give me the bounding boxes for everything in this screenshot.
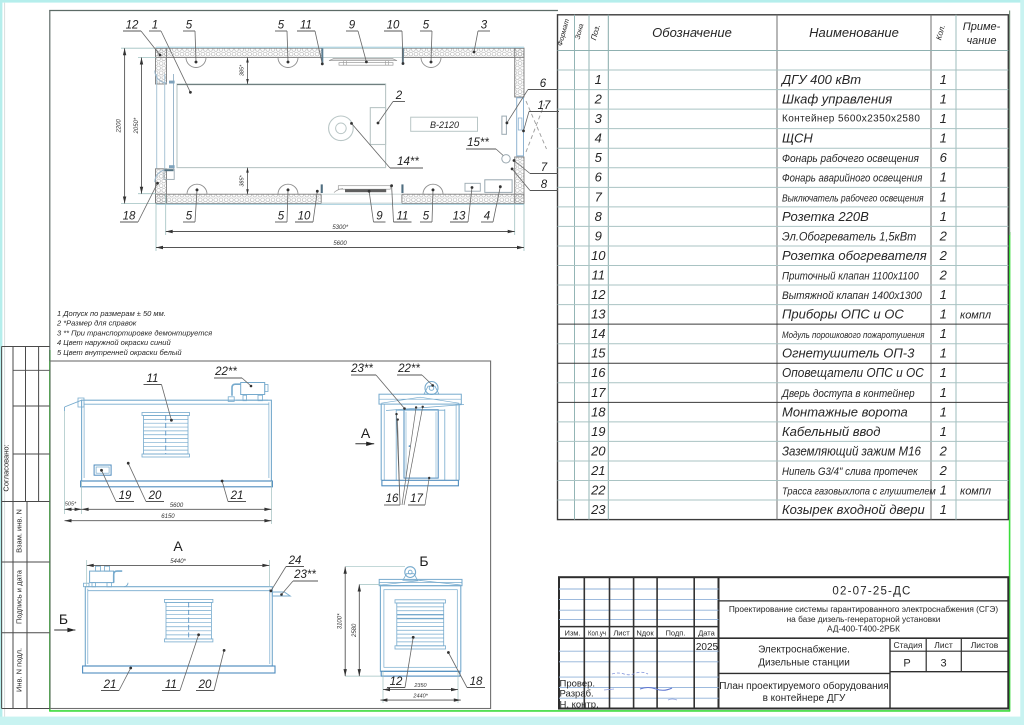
- svg-text:15**: 15**: [467, 137, 489, 149]
- svg-text:2350: 2350: [413, 683, 427, 689]
- svg-text:22**: 22**: [397, 363, 420, 375]
- svg-text:Согласовано:: Согласовано:: [2, 444, 11, 491]
- svg-text:9: 9: [376, 211, 383, 223]
- svg-text:19: 19: [591, 424, 605, 439]
- svg-text:02-07-25-ДС: 02-07-25-ДС: [832, 586, 911, 598]
- svg-text:1: 1: [940, 424, 947, 439]
- svg-text:1: 1: [152, 20, 158, 32]
- svg-text:Стадия: Стадия: [894, 640, 923, 650]
- svg-text:4: 4: [595, 131, 602, 146]
- svg-text:1: 1: [940, 404, 947, 419]
- svg-text:7: 7: [541, 162, 548, 174]
- svg-text:6150: 6150: [161, 514, 175, 520]
- svg-text:А: А: [361, 425, 371, 441]
- svg-text:5600: 5600: [170, 503, 184, 509]
- svg-text:Дверь доступа в контейнер: Дверь доступа в контейнер: [781, 388, 915, 400]
- svg-text:13: 13: [453, 211, 466, 223]
- svg-text:2025: 2025: [696, 642, 719, 653]
- svg-text:1: 1: [940, 72, 947, 87]
- svg-text:2: 2: [939, 443, 948, 458]
- svg-text:2: 2: [939, 228, 948, 243]
- svg-text:21: 21: [230, 490, 244, 502]
- svg-text:Кабельный ввод: Кабельный ввод: [782, 424, 880, 439]
- svg-text:8: 8: [541, 179, 548, 191]
- svg-text:14: 14: [591, 326, 605, 341]
- svg-text:Розетка 220В: Розетка 220В: [782, 209, 869, 224]
- svg-text:План проектируемого оборудован: План проектируемого оборудования: [719, 680, 888, 692]
- svg-text:Подп.: Подп.: [666, 628, 686, 637]
- svg-text:18: 18: [470, 676, 483, 688]
- svg-text:2: 2: [594, 92, 603, 107]
- svg-text:6: 6: [940, 150, 948, 165]
- svg-text:385*: 385*: [240, 174, 246, 186]
- svg-text:ДГУ 400 кВт: ДГУ 400 кВт: [780, 72, 861, 87]
- svg-text:5300*: 5300*: [332, 225, 348, 231]
- svg-text:2440*: 2440*: [412, 694, 428, 700]
- svg-text:2200: 2200: [117, 119, 123, 134]
- svg-text:16: 16: [591, 365, 606, 380]
- svg-text:Модуль порошкового пожаротушен: Модуль порошкового пожаротушения: [782, 330, 925, 341]
- svg-text:2: 2: [939, 463, 948, 478]
- svg-text:4 Цвет наружной окраски синий: 4 Цвет наружной окраски синий: [57, 338, 171, 347]
- svg-text:Лист: Лист: [613, 628, 630, 637]
- svg-text:Дата: Дата: [698, 628, 715, 637]
- svg-text:6: 6: [540, 78, 547, 90]
- svg-text:Оповещатели ОПС и ОС: Оповещатели ОПС и ОС: [782, 366, 924, 380]
- svg-text:Трасса газовыхлопа с глушителе: Трасса газовыхлопа с глушителем: [782, 486, 936, 498]
- svg-text:1: 1: [940, 209, 947, 224]
- svg-text:3100*: 3100*: [338, 613, 344, 629]
- svg-text:Электроснабжение.: Электроснабжение.: [758, 644, 850, 656]
- svg-text:3 ** При транспортировке демон: 3 ** При транспортировке демонтируется: [57, 328, 212, 337]
- svg-text:1: 1: [940, 346, 947, 361]
- svg-text:Шкаф управления: Шкаф управления: [782, 92, 892, 107]
- svg-text:2050*: 2050*: [134, 117, 140, 134]
- svg-text:А: А: [173, 538, 183, 554]
- svg-text:11: 11: [300, 20, 312, 32]
- svg-text:Выключатель рабочего освещения: Выключатель рабочего освещения: [782, 193, 924, 204]
- svg-text:компл: компл: [960, 485, 991, 497]
- svg-text:2: 2: [395, 90, 403, 102]
- svg-text:3: 3: [481, 20, 488, 32]
- svg-text:3: 3: [940, 658, 946, 670]
- svg-text:17: 17: [410, 493, 423, 505]
- svg-text:5: 5: [186, 211, 193, 223]
- svg-text:17: 17: [591, 385, 606, 400]
- svg-text:чание: чание: [966, 35, 996, 47]
- svg-text:11: 11: [592, 267, 606, 282]
- svg-text:5: 5: [278, 20, 285, 32]
- svg-text:8: 8: [595, 209, 603, 224]
- svg-text:Приточный клапан 1100х1100: Приточный клапан 1100х1100: [782, 271, 919, 283]
- svg-text:5: 5: [595, 150, 603, 165]
- svg-text:Вытяжной клапан 1400х1300: Вытяжной клапан 1400х1300: [782, 290, 922, 302]
- svg-text:1: 1: [940, 502, 947, 517]
- svg-text:10: 10: [591, 248, 606, 263]
- svg-text:11: 11: [165, 679, 177, 691]
- svg-text:22: 22: [590, 482, 606, 497]
- svg-text:11: 11: [147, 373, 159, 385]
- svg-text:20: 20: [198, 679, 212, 691]
- svg-text:Подпись и дата: Подпись и дата: [15, 569, 24, 624]
- svg-text:1: 1: [940, 111, 947, 126]
- svg-text:5: 5: [186, 20, 193, 32]
- svg-text:22**: 22**: [214, 366, 237, 378]
- svg-text:Монтажные ворота: Монтажные ворота: [782, 404, 908, 419]
- svg-text:1: 1: [940, 170, 947, 185]
- svg-text:1: 1: [940, 92, 947, 107]
- svg-text:Обозначение: Обозначение: [652, 25, 732, 40]
- svg-text:Контейнер 5600х2350х2580: Контейнер 5600х2350х2580: [782, 114, 920, 125]
- svg-text:12: 12: [126, 20, 139, 32]
- svg-text:Листов: Листов: [971, 640, 999, 650]
- svg-text:Б: Б: [419, 553, 428, 569]
- svg-text:18: 18: [123, 211, 136, 223]
- svg-text:Фонарь аварийного освещения: Фонарь аварийного освещения: [782, 173, 923, 185]
- svg-text:Изм.: Изм.: [564, 628, 580, 637]
- svg-text:Наименование: Наименование: [809, 25, 899, 40]
- svg-text:16: 16: [386, 493, 399, 505]
- svg-text:Р: Р: [903, 658, 910, 670]
- svg-text:20: 20: [590, 443, 606, 458]
- svg-text:2580: 2580: [352, 623, 358, 638]
- svg-text:1: 1: [940, 307, 947, 322]
- svg-text:Фонарь рабочего освещения: Фонарь рабочего освещения: [782, 153, 919, 165]
- svg-text:2 *Размер для справок: 2 *Размер для справок: [56, 319, 137, 328]
- svg-text:5 Цвет внутренней окраски белы: 5 Цвет внутренней окраски белый: [57, 348, 182, 357]
- svg-text:Инв. N подл.: Инв. N подл.: [15, 648, 24, 692]
- svg-text:Проектирование системы гаранти: Проектирование системы гарантированного …: [729, 604, 999, 614]
- svg-text:Н. контр.: Н. контр.: [560, 700, 599, 711]
- svg-text:1 Допуск по размерам ± 50 мм.: 1 Допуск по размерам ± 50 мм.: [57, 309, 166, 318]
- svg-text:3: 3: [595, 111, 603, 126]
- svg-text:17: 17: [538, 100, 551, 112]
- svg-text:6: 6: [595, 170, 603, 185]
- svg-text:1: 1: [940, 482, 947, 497]
- svg-text:4: 4: [484, 211, 490, 223]
- svg-text:Приме-: Приме-: [963, 21, 1001, 33]
- svg-text:Взам. инв. N: Взам. инв. N: [15, 509, 24, 553]
- svg-text:Козырек входной двери: Козырек входной двери: [782, 502, 925, 517]
- svg-text:Огнетушитель ОП-3: Огнетушитель ОП-3: [782, 346, 915, 361]
- svg-text:Заземляющий зажим М16: Заземляющий зажим М16: [782, 444, 921, 459]
- svg-text:10: 10: [387, 20, 400, 32]
- svg-text:5440*: 5440*: [170, 559, 186, 565]
- svg-text:2: 2: [939, 248, 948, 263]
- svg-text:15: 15: [591, 346, 606, 361]
- svg-text:Nдок: Nдок: [636, 628, 654, 637]
- svg-text:1: 1: [940, 131, 947, 146]
- svg-text:Дизельные станции: Дизельные станции: [758, 658, 850, 669]
- svg-text:19: 19: [119, 490, 132, 502]
- svg-text:2: 2: [939, 267, 948, 282]
- svg-text:12: 12: [591, 287, 606, 302]
- svg-text:В-2120: В-2120: [430, 120, 459, 130]
- svg-text:14**: 14**: [397, 156, 419, 168]
- svg-text:Эл.Обогреватель 1,5кВт: Эл.Обогреватель 1,5кВт: [782, 231, 917, 243]
- svg-text:Приборы ОПС и ОС: Приборы ОПС и ОС: [782, 307, 904, 322]
- svg-text:20: 20: [148, 490, 162, 502]
- svg-text:18: 18: [591, 404, 606, 419]
- svg-text:11: 11: [397, 211, 409, 223]
- svg-text:12: 12: [390, 676, 403, 688]
- svg-text:Нипель G3/4" слива протечек: Нипель G3/4" слива протечек: [782, 466, 919, 478]
- svg-text:Разраб.: Разраб.: [560, 689, 594, 700]
- svg-text:7: 7: [595, 189, 603, 204]
- svg-text:505*: 505*: [65, 502, 77, 508]
- svg-text:23**: 23**: [293, 569, 316, 581]
- svg-text:23**: 23**: [350, 363, 373, 375]
- svg-text:Кол.уч: Кол.уч: [588, 630, 606, 638]
- svg-text:9: 9: [595, 228, 602, 243]
- svg-text:24: 24: [288, 555, 302, 567]
- svg-text:5600: 5600: [333, 241, 347, 247]
- svg-text:1: 1: [940, 326, 947, 341]
- svg-text:ЩСН: ЩСН: [782, 131, 813, 146]
- svg-text:9: 9: [349, 20, 356, 32]
- svg-text:на базе дизель-генераторной ус: на базе дизель-генераторной установки: [787, 614, 941, 624]
- svg-text:Б: Б: [59, 611, 68, 627]
- svg-text:5: 5: [423, 211, 430, 223]
- svg-text:13: 13: [591, 307, 606, 322]
- svg-text:5: 5: [278, 211, 285, 223]
- svg-text:Лист: Лист: [934, 640, 953, 650]
- svg-text:АД-400-Т400-2РБК: АД-400-Т400-2РБК: [827, 624, 900, 634]
- svg-text:Розетка обогревателя: Розетка обогревателя: [782, 248, 927, 263]
- svg-text:1: 1: [940, 287, 947, 302]
- svg-text:1: 1: [940, 385, 947, 400]
- svg-text:в контейнере ДГУ: в контейнере ДГУ: [763, 693, 846, 704]
- svg-text:5: 5: [423, 20, 430, 32]
- svg-text:385*: 385*: [240, 64, 246, 76]
- svg-text:1: 1: [940, 189, 947, 204]
- svg-text:21: 21: [103, 679, 117, 691]
- svg-text:1: 1: [595, 72, 602, 87]
- svg-text:23: 23: [590, 502, 606, 517]
- svg-text:10: 10: [298, 211, 311, 223]
- svg-text:компл: компл: [960, 310, 991, 322]
- svg-text:1: 1: [940, 365, 947, 380]
- svg-text:21: 21: [590, 463, 605, 478]
